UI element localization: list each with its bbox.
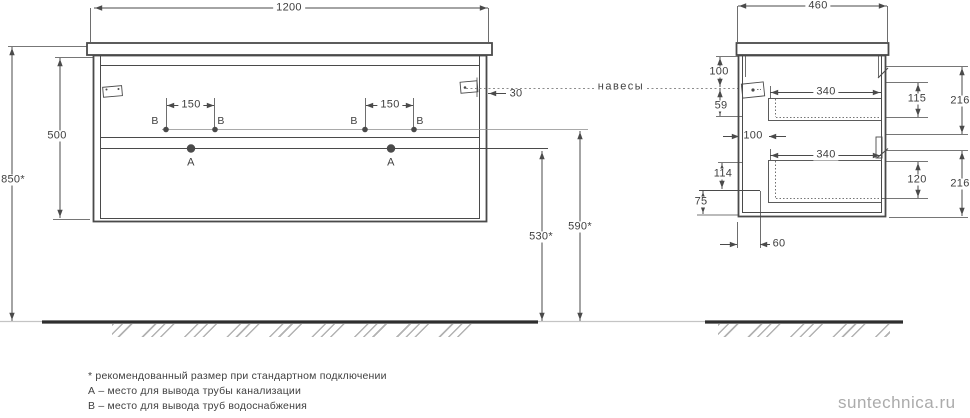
dim-drawer2-front: 120 (904, 175, 929, 186)
point-b-label-3: В (350, 116, 357, 127)
point-b-label-2: В (217, 116, 224, 127)
dim-hanger-drop: 59 (712, 101, 731, 112)
dim-drawer2-inner-depth: 340 (813, 150, 838, 161)
dim-drawer1-inner-depth: 340 (813, 87, 838, 98)
footnote-point-b: В – место для вывода труб водоснабжения (88, 401, 307, 412)
front-countertop (87, 43, 492, 55)
vanity-dimension-drawing (0, 0, 970, 418)
dim-water-height: 590* (565, 222, 595, 233)
side-countertop (737, 43, 889, 55)
floor-hatching-side (718, 324, 890, 337)
front-cabinet-body (94, 56, 487, 222)
dim-drawer1-front: 115 (905, 94, 929, 105)
front-view (8, 8, 739, 321)
site-watermark: suntechnica.ru (838, 393, 956, 413)
point-a-label-1: А (187, 158, 195, 169)
dim-depth: 460 (805, 1, 830, 12)
dim-hanger-from-top: 100 (706, 67, 731, 78)
dim-hanger-offset: 30 (510, 89, 523, 100)
hanger-icon-left (103, 86, 123, 98)
floor-line (0, 322, 903, 323)
dim-plinth-height: 75 (692, 197, 711, 208)
point-b-label-4: В (416, 116, 423, 127)
dim-outlet-spacing-right: 150 (377, 100, 402, 111)
drawer2-box (769, 161, 882, 203)
point-b-label-1: В (151, 116, 158, 127)
side-view (697, 6, 968, 248)
dim-front-width: 1200 (273, 3, 305, 14)
dim-front-panel-upper: 216 (947, 96, 970, 107)
technical-drawing-page: 1200 850* 500 150 150 30 530* 590* навес… (0, 0, 970, 418)
dim-outlet-spacing-left: 150 (178, 100, 203, 111)
dim-total-height: 850* (0, 175, 28, 186)
footnote-point-a: А – место для вывода трубы канализации (88, 386, 301, 397)
dim-drain-height: 530* (526, 232, 556, 243)
floor-hatching-front (112, 324, 472, 337)
point-a-label-2: А (387, 158, 395, 169)
hangers-label: навесы (595, 82, 647, 93)
dim-front-panel-lower: 216 (947, 179, 970, 190)
hanger-icon-right (460, 78, 478, 98)
dim-plinth-offset: 60 (773, 239, 786, 250)
footnote-recommended-size: * рекомендованный размер при стандартном… (88, 371, 387, 382)
drawer1-handle-profile (878, 68, 888, 78)
hanger-icon-side (741, 82, 764, 98)
dim-cabinet-height: 500 (44, 131, 69, 142)
dim-drawer-back-clearance: 100 (743, 131, 762, 142)
dim-bottom-section: 114 (711, 169, 735, 180)
